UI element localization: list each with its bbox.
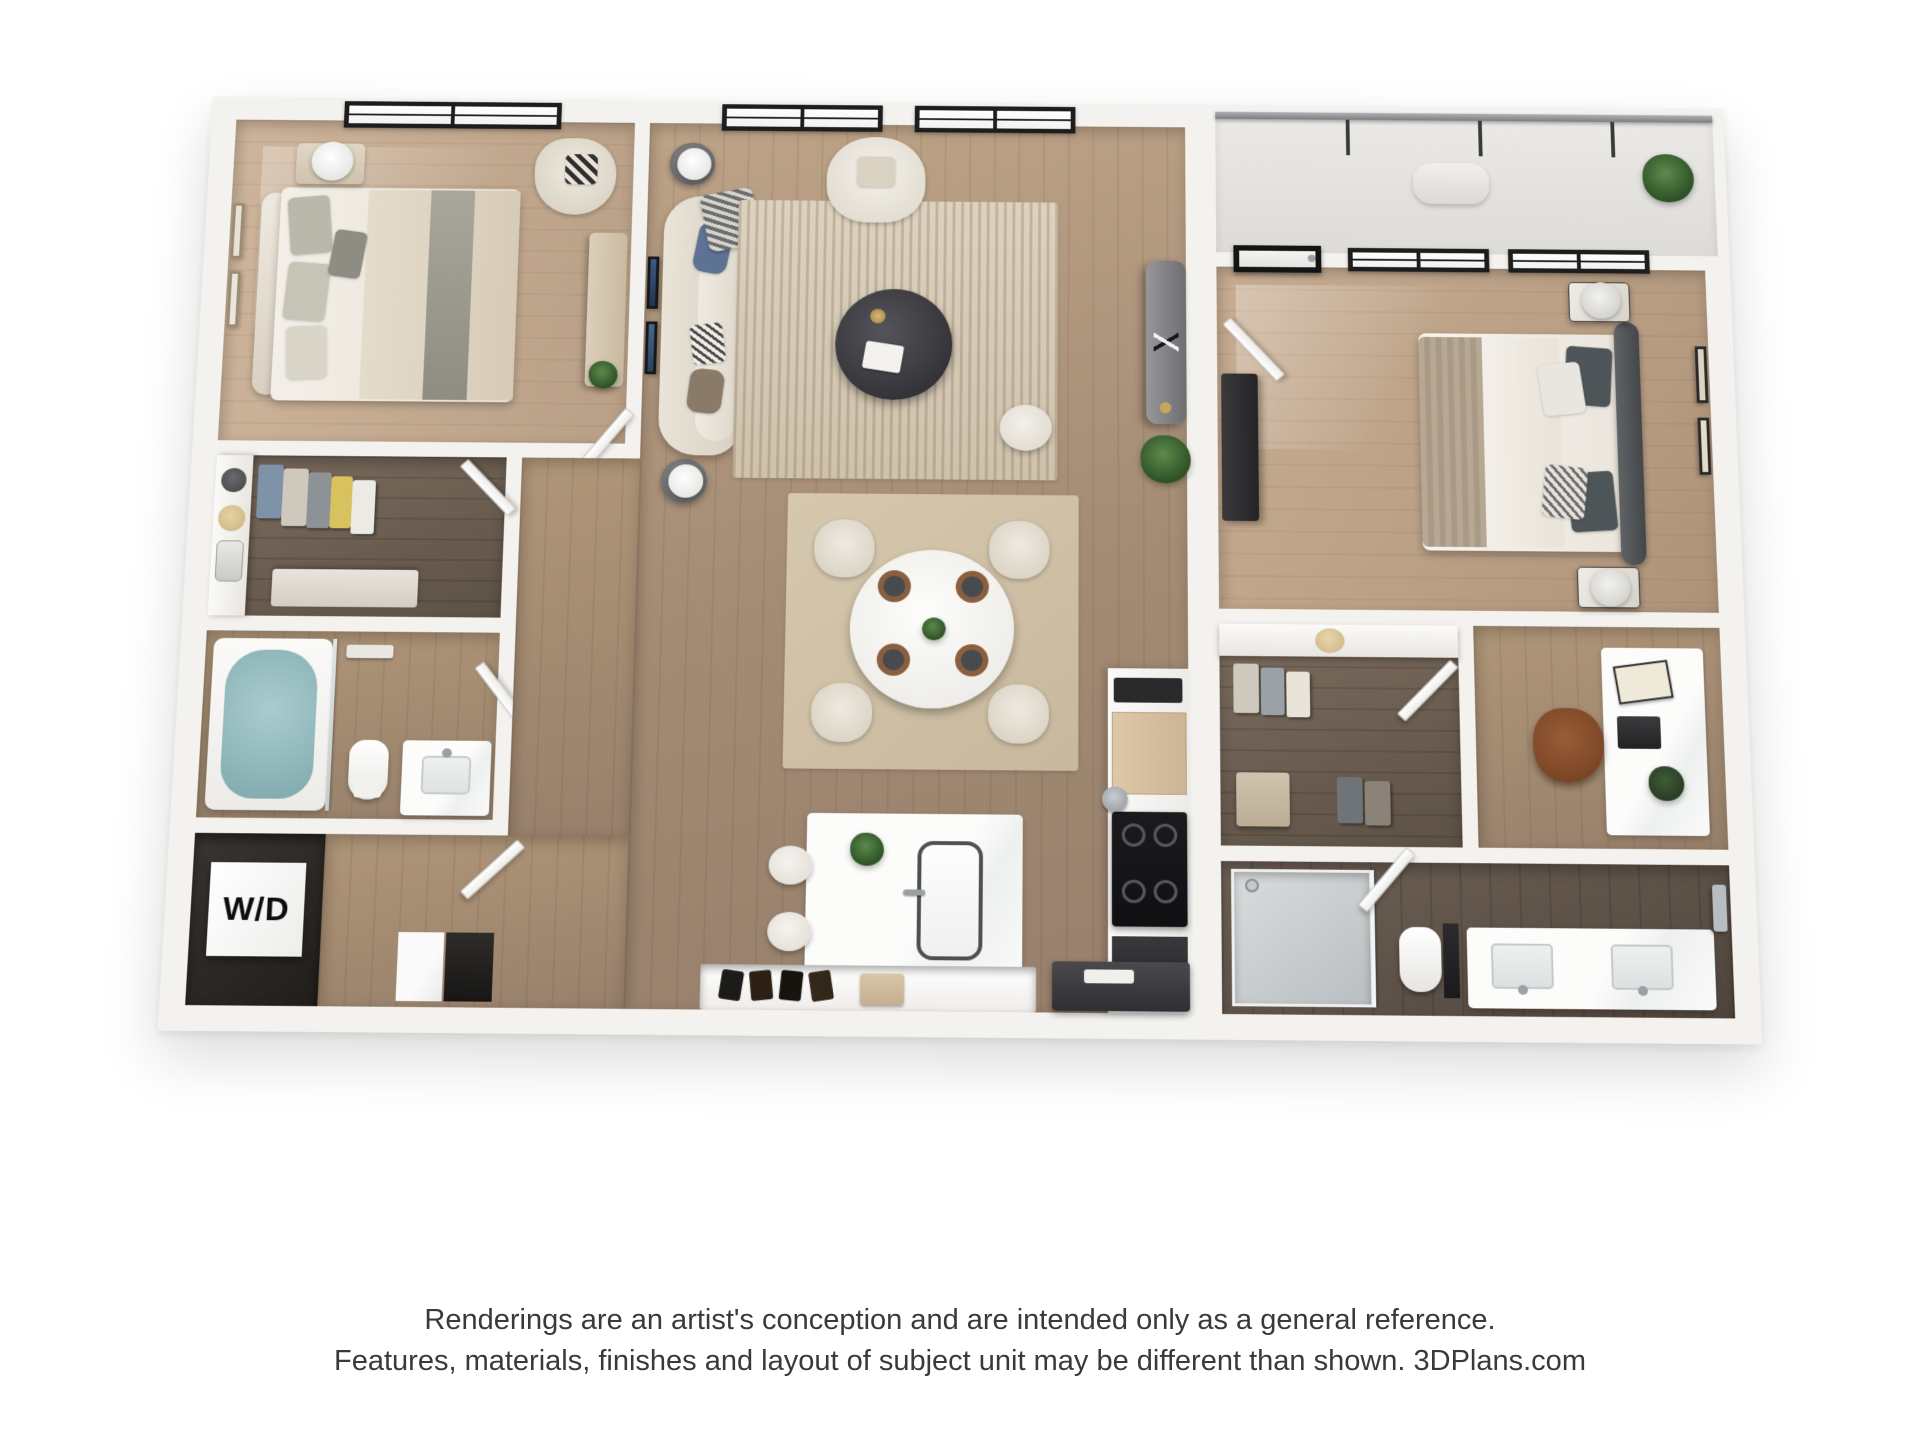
living-room-window [915, 106, 1076, 134]
dining-chair [811, 683, 873, 743]
pantry-cabinet-tan [329, 931, 396, 1000]
kitchen-appliance [1114, 678, 1183, 703]
shoes [749, 970, 773, 1002]
disclaimer-text: Renderings are an artist's conception an… [0, 1300, 1920, 1382]
towel-on-bar [1712, 885, 1728, 932]
cooktop-burner [1122, 823, 1146, 846]
desk-typewriter [1617, 716, 1661, 749]
place-setting [956, 571, 989, 603]
bedroom-1-pillow [286, 325, 326, 379]
bathroom-2-toilet [1399, 927, 1442, 992]
bedroom-2-lamp [1591, 569, 1631, 607]
island-faucet [903, 889, 925, 895]
washer-dryer: W/D [206, 862, 307, 957]
place-setting [955, 644, 989, 676]
bedroom-2-lamp [1581, 282, 1620, 318]
vanity-sink-right [1611, 944, 1674, 990]
closet-2-hanging-clothes [1286, 672, 1310, 718]
shoes [779, 970, 804, 1002]
bedroom-1-throw-blanket [422, 190, 475, 400]
bedroom-2-pillow-check [1542, 464, 1589, 520]
entry-console-tray [1084, 969, 1134, 983]
bathroom-2-toilet-ledge [1443, 923, 1461, 998]
disclaimer-line-2: Features, materials, finishes and layout… [0, 1341, 1920, 1382]
bathroom-1-tub-water [219, 649, 319, 799]
dining-chair [988, 684, 1049, 744]
marble-panel [396, 932, 445, 1001]
vanity-faucet [1638, 986, 1648, 996]
cooktop-burner [1153, 824, 1177, 847]
bathroom-1-toilet-tank [353, 780, 381, 798]
closet-2-hanging-clothes [1337, 777, 1363, 823]
closet-1-backpack [215, 540, 245, 581]
bedroom-1-armchair-pillow [565, 154, 598, 184]
washer-dryer-label: W/D [222, 890, 291, 928]
closet-2-hanging-clothes [1233, 663, 1259, 713]
cooktop-burner [1122, 880, 1146, 904]
dark-cabinet [444, 932, 495, 1001]
closet-1-lower-rack [271, 569, 419, 608]
dining-centerpiece [922, 617, 946, 640]
living-plant [1141, 435, 1191, 483]
closet-2-hanging-clothes [1261, 668, 1285, 716]
console-figurine-gold [1160, 402, 1172, 413]
closet-1-hanging-clothes [350, 480, 376, 534]
bedroom-2-window [1348, 248, 1490, 273]
bathroom-1-towel-bar [346, 645, 394, 659]
bedroom-2-media-dresser [1221, 373, 1259, 521]
coffee-table-vase [870, 309, 886, 324]
closet-2-dresser [1236, 772, 1290, 826]
bathroom-1-sink [421, 756, 472, 795]
bedroom-2-wall-art [1695, 346, 1709, 403]
closet-2-hanging-clothes [1364, 781, 1390, 826]
island-plant [850, 833, 884, 866]
floor-plan-3d-view: W/D [135, 88, 1784, 1081]
bedroom-2-wall-art [1698, 418, 1712, 475]
steel-pot [1102, 786, 1128, 811]
desk-chair-leather [1532, 708, 1605, 783]
island-sink [916, 841, 983, 961]
railing-post [1346, 120, 1350, 155]
living-wall-art-blue [644, 321, 657, 374]
armchair-pillow [857, 156, 895, 186]
sofa-pillow-striped [689, 322, 726, 366]
sofa-pillow-brown [685, 367, 725, 414]
hallway-left-floor [508, 458, 640, 837]
bedroom-2-striped-runner [1418, 337, 1490, 547]
shower-head [1245, 879, 1259, 893]
tv-console-x-pattern [1153, 288, 1178, 397]
closet-1-hanging-clothes [329, 476, 353, 528]
closet-1-hanging-clothes [256, 465, 284, 519]
dining-chair [989, 521, 1050, 579]
closet-1-hanging-clothes [306, 472, 332, 528]
coffee-table-book [862, 341, 905, 374]
dining-chair [814, 519, 875, 577]
vanity-faucet [1518, 985, 1528, 995]
bedroom-1-window [344, 101, 562, 129]
ottoman-pouf [1000, 405, 1052, 451]
kitchen-island [804, 813, 1023, 991]
apartment-unit: W/D [158, 97, 1763, 1045]
floor-plan-page: W/D [0, 0, 1920, 1440]
desk-book [1613, 660, 1674, 705]
balcony-lounge-chair [1413, 163, 1490, 205]
cooktop-burner [1154, 880, 1178, 904]
disclaimer-line-1: Renderings are an artist's conception an… [0, 1300, 1920, 1341]
kitchen-tall-cabinet-tan [1112, 712, 1187, 795]
bedroom-2-window [1508, 249, 1650, 274]
living-room-window [722, 104, 883, 132]
shoes [808, 970, 834, 1002]
living-wall-art-blue [646, 256, 659, 308]
bedroom-1-pillow [282, 261, 331, 322]
closet-1-hanging-clothes [281, 468, 309, 526]
bedroom-1-pillow [288, 195, 333, 256]
bedroom-2-pillow-white [1537, 361, 1587, 416]
closet-2-hat [1315, 628, 1345, 653]
storage-box [860, 973, 904, 1005]
vanity-sink-left [1491, 943, 1554, 989]
entry-door-handle [1308, 255, 1316, 262]
